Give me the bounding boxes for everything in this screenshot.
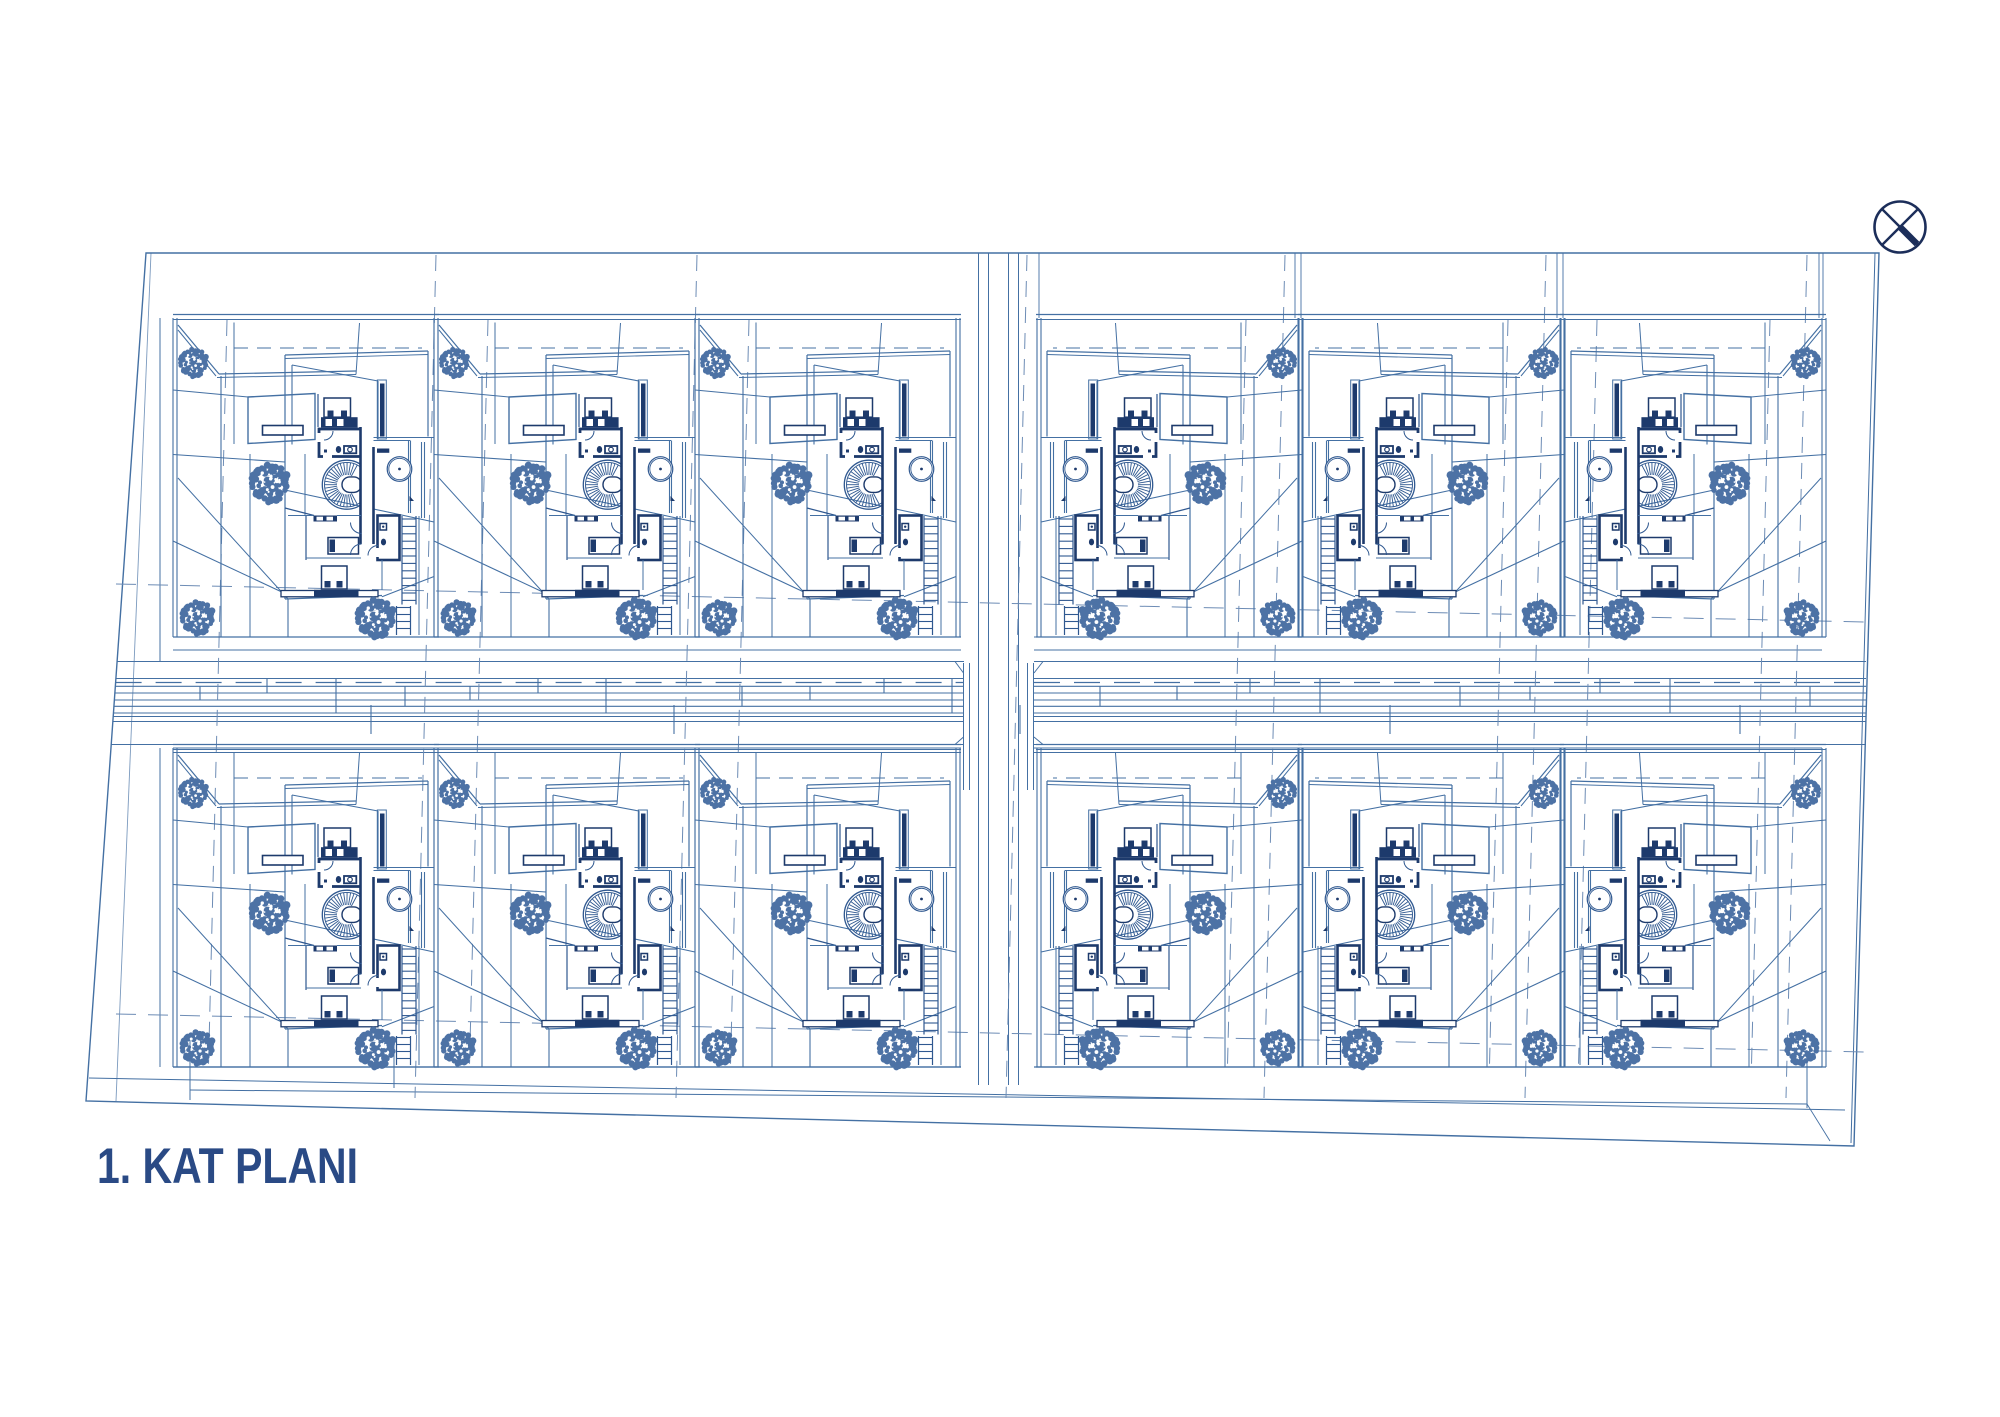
svg-text:1. KAT PLANI: 1. KAT PLANI <box>97 1138 358 1194</box>
